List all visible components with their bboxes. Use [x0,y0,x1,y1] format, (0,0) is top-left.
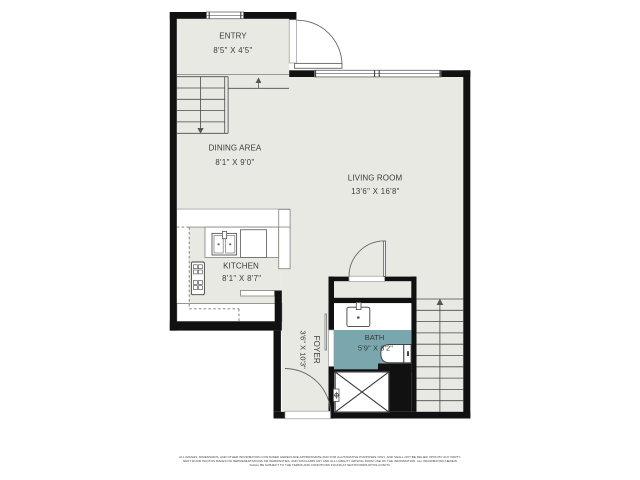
svg-text:FOYER: FOYER [312,336,321,364]
svg-text:8'5" X 4'5": 8'5" X 4'5" [213,46,252,55]
svg-text:LIVING ROOM: LIVING ROOM [348,173,403,182]
svg-text:SHALL BE SUBJECT TO THE TERMS: SHALL BE SUBJECT TO THE TERMS AND CONDIT… [250,463,392,467]
svg-text:DINING AREA: DINING AREA [209,143,262,152]
svg-text:13'6" X 16'8": 13'6" X 16'8" [351,187,400,196]
svg-text:8'1" X 9'0": 8'1" X 9'0" [215,158,254,167]
svg-text:8'1" X 8'7": 8'1" X 8'7" [222,274,261,283]
svg-text:KITCHEN: KITCHEN [223,261,259,270]
svg-text:3'6" X 10'3": 3'6" X 10'3" [299,331,308,370]
svg-text:BATH: BATH [365,333,385,342]
svg-text:ENTRY: ENTRY [219,32,247,41]
svg-text:5'9" X 8'2": 5'9" X 8'2" [358,343,393,352]
